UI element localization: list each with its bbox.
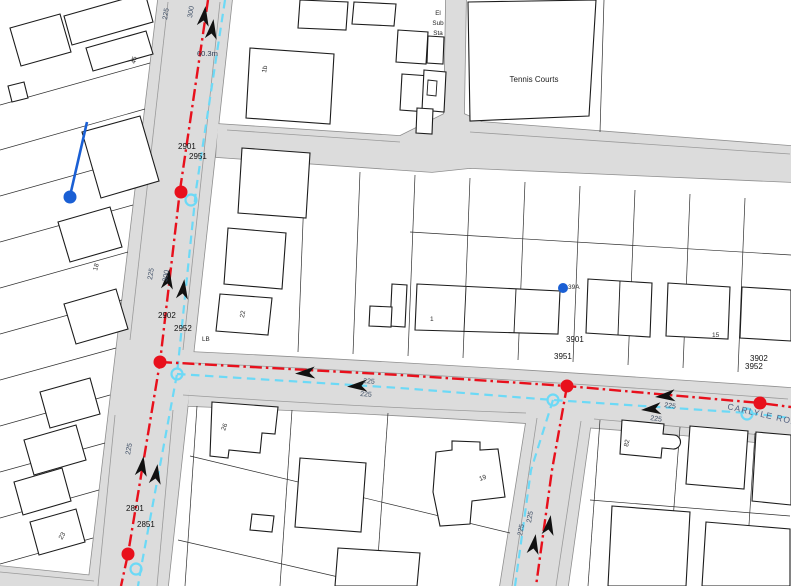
gis-map-canvas[interactable]: 2901 2951 2902 2952 2801 2851 3901 3951 … <box>0 0 791 586</box>
service-pipe-blue[interactable] <box>70 122 87 196</box>
main-id-label: 2902 <box>158 311 176 320</box>
main-id-label: 2901 <box>178 142 196 151</box>
el-sub-sta-label: Sta <box>433 30 443 37</box>
tennis-courts-label: Tennis Courts <box>510 75 559 84</box>
letter-box-label: LB <box>202 336 210 343</box>
main-id-label: 2952 <box>174 324 192 333</box>
house-number: 1 <box>430 316 434 323</box>
main-id-label: 2801 <box>126 504 144 513</box>
pipe-size-label: 225 <box>360 391 372 399</box>
service-dot-39a <box>558 283 568 293</box>
pipe-size-label: 225 <box>363 378 375 386</box>
house-number-39a: 39A <box>568 284 580 291</box>
measurement-label: 60.3m <box>197 49 218 58</box>
house-number: 15 <box>712 332 720 339</box>
utility-map-svg[interactable]: 2901 2951 2902 2952 2801 2851 3901 3951 … <box>0 0 791 586</box>
main-id-label: 3952 <box>745 362 763 371</box>
el-sub-sta-label: Sub <box>432 20 444 27</box>
main-id-label: 3901 <box>566 335 584 344</box>
valve-dot <box>175 186 188 199</box>
valve-dot <box>154 356 167 369</box>
main-id-label: 2851 <box>137 520 155 529</box>
main-id-label: 2951 <box>189 152 207 161</box>
main-id-label: 3951 <box>554 352 572 361</box>
tennis-courts-area <box>468 0 596 121</box>
valve-dot <box>122 548 135 561</box>
service-dot <box>64 191 77 204</box>
valve-dot <box>561 380 574 393</box>
el-sub-sta-label: El <box>435 10 441 17</box>
house-number: 18 <box>92 262 101 271</box>
